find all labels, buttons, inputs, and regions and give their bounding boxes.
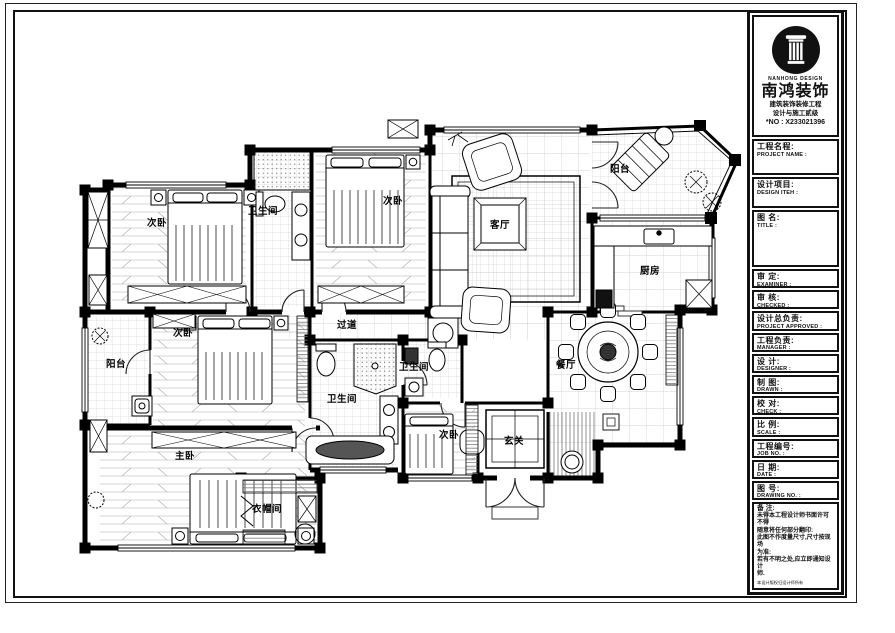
field-examiner-en: EXAMINER :	[757, 282, 834, 289]
notes-line: 师.	[757, 571, 834, 578]
field-checked-en: CHECKED :	[757, 303, 834, 310]
field-checked-cn: 审 核:	[757, 293, 834, 303]
field-project-name: 工程名程: PROJECT NAME :	[752, 139, 839, 175]
room-label-bedroom-mid-left: 次卧	[173, 325, 193, 339]
bed-mid-left	[182, 316, 288, 404]
field-drawing-no-cn: 图 号:	[757, 484, 834, 494]
field-drawn-en: DRAWN :	[757, 387, 834, 394]
field-project-approved: 设计总负责: PROJECT APPROVED :	[752, 311, 839, 330]
field-design-item: 设计项目: DESIGN ITEH :	[752, 177, 839, 208]
field-drawn: 制 图: DRAWN :	[752, 375, 839, 394]
notes-line: 未得本工程设计师书面许可不得	[757, 513, 834, 528]
field-drawn-cn: 制 图:	[757, 378, 834, 388]
field-designer: 设 计: DESIGNER :	[752, 354, 839, 373]
hotline-phone: 免费咨询电话:400 8383 168	[757, 588, 834, 590]
field-project-approved-en: PROJECT APPROVED :	[757, 324, 834, 331]
field-title-en: TITLE :	[757, 223, 834, 230]
field-project-name-cn: 工程名程:	[757, 142, 834, 152]
notes-line: 随意将任何部分翻印:	[757, 528, 834, 535]
notes-line: 为准:	[757, 550, 834, 557]
room-label-living-room: 客厅	[490, 217, 510, 231]
field-check: 校 对: CHECK :	[752, 396, 839, 415]
license-number: *NO : X233021396	[766, 119, 825, 126]
field-job-no-cn: 工程编号:	[757, 442, 834, 452]
column-icon	[784, 34, 808, 66]
room-label-dining-room: 餐厅	[556, 357, 576, 371]
field-drawing-no-en: DRAWING NO. :	[757, 493, 834, 500]
room-label-balcony-left: 阳台	[106, 356, 126, 370]
floor-plan-drawing	[0, 0, 748, 633]
field-manager: 工程负责: MANAGER :	[752, 333, 839, 352]
room-label-entry: 玄关	[504, 433, 524, 447]
field-job-no: 工程编号: JOB NO. :	[752, 439, 839, 458]
logo-mark	[772, 26, 820, 74]
notes-title: 备 注:	[757, 505, 834, 513]
field-checked: 审 核: CHECKED :	[752, 290, 839, 309]
room-label-kitchen: 厨房	[640, 263, 660, 277]
field-date-en: DATE :	[757, 472, 834, 479]
notes-line: 若有不明之处,应立即通知设计	[757, 557, 834, 572]
field-design-item-cn: 设计项目:	[757, 180, 834, 190]
room-label-bathroom-top: 卫生间	[248, 203, 278, 217]
field-manager-cn: 工程负责:	[757, 336, 834, 346]
field-design-item-en: DESIGN ITEH :	[757, 190, 834, 197]
floor-plan: 次卧 卫生间 次卧 客厅 阳台 厨房 次卧 阳台 过道 卫生间 卫生间 餐厅 主…	[0, 0, 748, 633]
notes-line: 此图不作度量尺寸,尺寸按现场	[757, 535, 834, 550]
field-date: 日 期: DATE :	[752, 460, 839, 479]
room-label-bathroom-small: 卫生间	[399, 359, 429, 373]
laundry	[561, 451, 583, 473]
field-designer-en: DESIGNER :	[757, 366, 834, 373]
room-label-bedroom-top-left: 次卧	[147, 215, 167, 229]
notes-section: 备 注: 未得本工程设计师书面许可不得 随意将任何部分翻印: 此图不作度量尺寸,…	[752, 502, 839, 590]
brand-name-en: NANHONG DESIGN	[768, 76, 823, 82]
room-label-master-bedroom: 主卧	[175, 448, 195, 462]
title-block: NANHONG DESIGN 南鸿装饰 建筑装饰装修工程 设计与施工贰级 *NO…	[747, 10, 844, 595]
room-label-bedroom-bottom: 次卧	[439, 427, 459, 441]
room-label-bedroom-top-middle: 次卧	[383, 193, 403, 207]
room-label-corridor: 过道	[337, 317, 357, 331]
field-check-en: CHECK :	[757, 409, 834, 416]
field-date-cn: 日 期:	[757, 463, 834, 473]
logo-subtitle-1: 建筑装饰装修工程	[770, 101, 822, 109]
field-scale-cn: 比 例:	[757, 420, 834, 430]
brand-name-cn: 南鸿装饰	[761, 83, 829, 100]
field-project-approved-cn: 设计总负责:	[757, 314, 834, 324]
field-examiner-cn: 审 定:	[757, 272, 834, 282]
field-job-no-en: JOB NO. :	[757, 451, 834, 458]
room-label-cloakroom: 衣帽间	[252, 501, 282, 515]
field-drawing-no: 图 号: DRAWING NO. :	[752, 481, 839, 500]
room-label-bathroom-master: 卫生间	[327, 391, 357, 405]
field-project-name-en: PROJECT NAME :	[757, 152, 834, 159]
field-manager-en: MANAGER :	[757, 345, 834, 352]
field-title-cn: 图 名:	[757, 213, 834, 223]
field-title: 图 名: TITLE :	[752, 210, 839, 267]
logo-section: NANHONG DESIGN 南鸿装饰 建筑装饰装修工程 设计与施工贰级 *NO…	[752, 15, 839, 137]
field-scale: 比 例: SCALE :	[752, 417, 839, 436]
field-designer-cn: 设 计:	[757, 357, 834, 367]
room-label-balcony-top-right: 阳台	[610, 161, 630, 175]
field-check-cn: 校 对:	[757, 399, 834, 409]
field-scale-en: SCALE :	[757, 430, 834, 437]
field-examiner: 审 定: EXAMINER :	[752, 269, 839, 288]
notes-fine-print: 本设计版权归设计师所有	[757, 580, 834, 585]
logo-subtitle-2: 设计与施工贰级	[773, 110, 819, 118]
